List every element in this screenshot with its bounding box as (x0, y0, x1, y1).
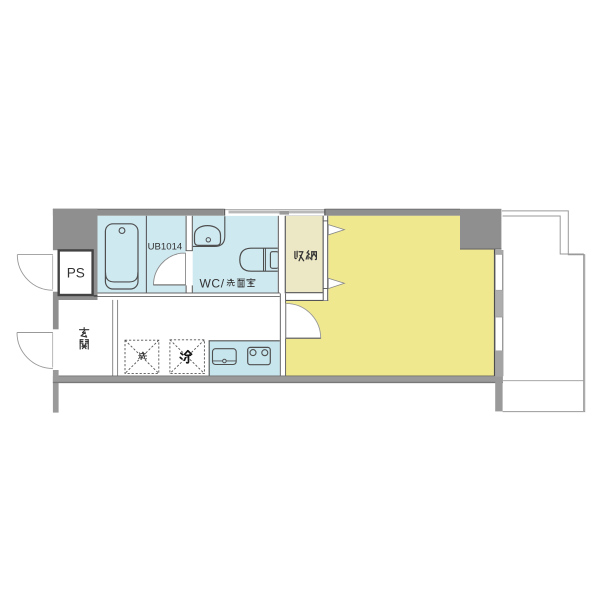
svg-text:WC/: WC/ (200, 277, 225, 291)
svg-text:PS: PS (67, 266, 85, 281)
svg-text:UB1014: UB1014 (148, 242, 183, 253)
